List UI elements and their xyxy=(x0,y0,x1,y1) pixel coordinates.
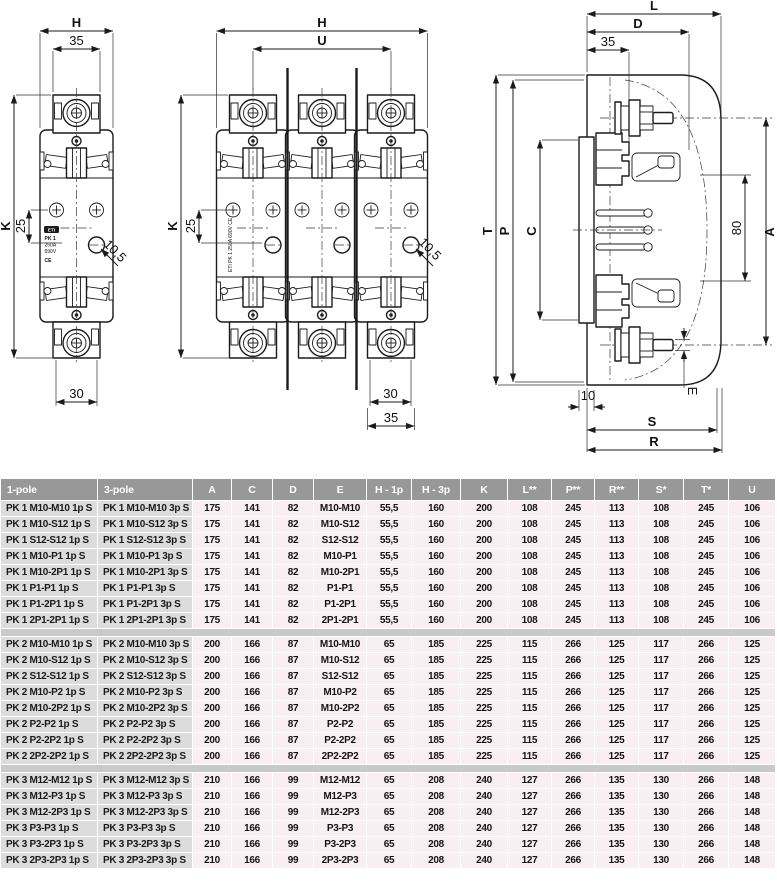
dimension-value: P2-P2 xyxy=(314,717,366,732)
dimension-value: 106 xyxy=(729,613,775,628)
dimension-value: 125 xyxy=(595,653,638,668)
dim-label-d: D xyxy=(633,16,642,31)
svg-text:CE: CE xyxy=(45,258,53,264)
dimension-value: 82 xyxy=(273,565,313,580)
dimension-value: 141 xyxy=(232,565,272,580)
dimension-value: 65 xyxy=(367,821,411,836)
dimensions-table: 1-pole 3-pole A C D E H - 1p H - 3p K L*… xyxy=(0,478,776,869)
dimension-value: 108 xyxy=(639,533,683,548)
table-row: PK 1 M10-2P1 1p SPK 1 M10-2P1 3p S175141… xyxy=(1,565,775,580)
dimension-value: 65 xyxy=(367,805,411,820)
dim-label-35-3p: 35 xyxy=(384,410,398,425)
dimension-value: 225 xyxy=(461,733,507,748)
dimension-value: 82 xyxy=(273,597,313,612)
dimension-value: 245 xyxy=(552,581,594,596)
dimension-value: 225 xyxy=(461,685,507,700)
dimension-value: M10-M10 xyxy=(314,637,366,652)
dimension-value: 245 xyxy=(684,501,728,516)
dimension-value: 115 xyxy=(508,717,551,732)
part-number-1pole: PK 2 M10-P2 1p S xyxy=(1,685,97,700)
dimension-value: 135 xyxy=(595,789,638,804)
table-row: PK 1 M10-S12 1p SPK 1 M10-S12 3p S175141… xyxy=(1,517,775,532)
dimension-value: 175 xyxy=(193,549,231,564)
dimension-value: 125 xyxy=(729,701,775,716)
dimension-value: 266 xyxy=(684,789,728,804)
dim-label-10: 10 xyxy=(581,388,595,403)
dimension-value: 117 xyxy=(639,701,683,716)
dimension-value: 108 xyxy=(639,581,683,596)
dimension-value: 82 xyxy=(273,501,313,516)
dimension-value: S12-S12 xyxy=(314,669,366,684)
dimension-value: 113 xyxy=(595,533,638,548)
dimension-value: 55,5 xyxy=(367,501,411,516)
table-row: PK 1 M10-P1 1p SPK 1 M10-P1 3p S17514182… xyxy=(1,549,775,564)
dimension-value: 117 xyxy=(639,685,683,700)
part-number-1pole: PK 3 M12-P3 1p S xyxy=(1,789,97,804)
dimension-value: 125 xyxy=(595,669,638,684)
dimension-value: 266 xyxy=(684,685,728,700)
part-number-1pole: PK 2 2P2-2P2 1p S xyxy=(1,749,97,764)
dimension-value: 208 xyxy=(412,821,460,836)
dimension-value: 225 xyxy=(461,637,507,652)
dimension-value: 115 xyxy=(508,733,551,748)
part-number-1pole: PK 2 M10-S12 1p S xyxy=(1,653,97,668)
dimension-value: 208 xyxy=(412,853,460,868)
dimension-value: 2P2-2P2 xyxy=(314,749,366,764)
dimension-value: 266 xyxy=(552,837,594,852)
dim-label-h-3p: H xyxy=(317,15,326,30)
dimension-value: 2P3-2P3 xyxy=(314,853,366,868)
dimension-value: 141 xyxy=(232,597,272,612)
product-marking-3p: ETI PK 1 250A 690V CE xyxy=(228,217,234,272)
dimension-value: 148 xyxy=(729,853,775,868)
table-header-row: 1-pole 3-pole A C D E H - 1p H - 3p K L*… xyxy=(1,479,775,500)
dimension-value: 65 xyxy=(367,701,411,716)
dimension-value: 266 xyxy=(552,637,594,652)
dimension-value: 200 xyxy=(193,701,231,716)
dimension-value: 87 xyxy=(273,653,313,668)
svg-text:PK 1: PK 1 xyxy=(45,236,56,242)
column-header-h3p: H - 3p xyxy=(412,479,460,500)
dim-label-35-1p: 35 xyxy=(69,33,83,48)
dimension-value: 266 xyxy=(684,837,728,852)
dimension-value: 160 xyxy=(412,517,460,532)
dimension-value: S12-S12 xyxy=(314,533,366,548)
dimension-value: 125 xyxy=(729,749,775,764)
dimension-value: 82 xyxy=(273,549,313,564)
dimension-value: 175 xyxy=(193,613,231,628)
dimension-value: 225 xyxy=(461,669,507,684)
dimension-value: 200 xyxy=(193,717,231,732)
dimension-value: P2-2P2 xyxy=(314,733,366,748)
dim-label-a: A xyxy=(762,227,777,237)
table-row: PK 1 S12-S12 1p SPK 1 S12-S12 3p S175141… xyxy=(1,533,775,548)
dimension-value: 141 xyxy=(232,533,272,548)
dimension-value: M10-2P2 xyxy=(314,701,366,716)
dimension-value: 266 xyxy=(552,853,594,868)
dimension-value: 65 xyxy=(367,669,411,684)
dimension-value: 166 xyxy=(232,701,272,716)
part-number-1pole: PK 2 M10-M10 1p S xyxy=(1,637,97,652)
part-number-3pole: PK 2 2P2-2P2 3p S xyxy=(98,749,192,764)
dimension-value: 200 xyxy=(461,565,507,580)
part-number-3pole: PK 3 M12-M12 3p S xyxy=(98,773,192,788)
dimension-value: 266 xyxy=(552,653,594,668)
part-number-1pole: PK 3 P3-2P3 1p S xyxy=(1,837,97,852)
dimension-value: 166 xyxy=(232,653,272,668)
dimension-value: 130 xyxy=(639,805,683,820)
dimension-value: 87 xyxy=(273,733,313,748)
dimension-value: 55,5 xyxy=(367,533,411,548)
dimension-value: 166 xyxy=(232,733,272,748)
dimension-value: 106 xyxy=(729,549,775,564)
part-number-1pole: PK 3 P3-P3 1p S xyxy=(1,821,97,836)
dimension-value: 266 xyxy=(684,717,728,732)
dimension-value: 245 xyxy=(552,517,594,532)
dimension-value: 166 xyxy=(232,837,272,852)
dimension-value: 115 xyxy=(508,669,551,684)
svg-text:690V: 690V xyxy=(45,249,57,255)
dimension-value: 245 xyxy=(552,549,594,564)
table-row: PK 2 M10-P2 1p SPK 2 M10-P2 3p S20016687… xyxy=(1,685,775,700)
dimension-value: M10-S12 xyxy=(314,517,366,532)
column-header-l: L** xyxy=(508,479,551,500)
dimension-value: 245 xyxy=(684,549,728,564)
part-number-1pole: PK 1 M10-S12 1p S xyxy=(1,517,97,532)
dimension-value: 115 xyxy=(508,701,551,716)
dimension-value: 208 xyxy=(412,773,460,788)
dimension-value: 266 xyxy=(552,717,594,732)
dimension-value: 185 xyxy=(412,733,460,748)
dimension-value: 200 xyxy=(461,613,507,628)
dimension-value: 127 xyxy=(508,853,551,868)
dimension-value: 245 xyxy=(684,533,728,548)
dimension-value: 113 xyxy=(595,549,638,564)
dimension-value: M10-2P1 xyxy=(314,565,366,580)
dimension-value: 125 xyxy=(729,733,775,748)
dimension-value: 108 xyxy=(508,581,551,596)
table-row: PK 1 M10-M10 1p SPK 1 M10-M10 3p S175141… xyxy=(1,501,775,516)
dim-label-p: P xyxy=(497,226,512,235)
dimension-value: 108 xyxy=(639,501,683,516)
dimension-value: 130 xyxy=(639,853,683,868)
dimension-value: 113 xyxy=(595,517,638,532)
dimension-value: 245 xyxy=(684,613,728,628)
dimension-value: 65 xyxy=(367,733,411,748)
dimension-value: 166 xyxy=(232,789,272,804)
dimension-value: 185 xyxy=(412,653,460,668)
table-row: PK 2 M10-2P2 1p SPK 2 M10-2P2 3p S200166… xyxy=(1,701,775,716)
dimension-value: 200 xyxy=(461,517,507,532)
dimension-value: 125 xyxy=(595,637,638,652)
dimension-value: 166 xyxy=(232,821,272,836)
dimension-value: 200 xyxy=(193,749,231,764)
dimension-value: 99 xyxy=(273,773,313,788)
dimension-value: 117 xyxy=(639,653,683,668)
dimension-value: 266 xyxy=(684,773,728,788)
column-header-r: R** xyxy=(595,479,638,500)
dimension-value: 65 xyxy=(367,773,411,788)
dimension-value: 127 xyxy=(508,789,551,804)
dimension-value: 245 xyxy=(684,581,728,596)
dimension-value: 200 xyxy=(193,653,231,668)
dimension-value: M10-M10 xyxy=(314,501,366,516)
dimension-value: 82 xyxy=(273,533,313,548)
dimension-value: 175 xyxy=(193,517,231,532)
drawing-side-view: L D 35 T P C A 80 E xyxy=(480,0,777,453)
part-number-1pole: PK 1 M10-2P1 1p S xyxy=(1,565,97,580)
dimension-value: 87 xyxy=(273,637,313,652)
dimension-value: 108 xyxy=(639,613,683,628)
dimension-value: 106 xyxy=(729,565,775,580)
part-number-1pole: PK 1 S12-S12 1p S xyxy=(1,533,97,548)
dim-label-e: E xyxy=(685,387,700,396)
part-number-3pole: PK 2 M10-2P2 3p S xyxy=(98,701,192,716)
dimension-value: 160 xyxy=(412,549,460,564)
dim-label-30-3p: 30 xyxy=(383,386,397,401)
dimension-value: 113 xyxy=(595,565,638,580)
dimension-value: 127 xyxy=(508,773,551,788)
dimension-value: 266 xyxy=(552,805,594,820)
table-row: PK 2 M10-M10 1p SPK 2 M10-M10 3p S200166… xyxy=(1,637,775,652)
dimension-value: 106 xyxy=(729,533,775,548)
dim-label-s: S xyxy=(648,414,657,429)
dimension-value: 106 xyxy=(729,597,775,612)
dimension-value: 200 xyxy=(193,733,231,748)
column-header-h1p: H - 1p xyxy=(367,479,411,500)
dimension-value: 55,5 xyxy=(367,581,411,596)
dim-label-k-3p: K xyxy=(165,221,180,231)
table-row: PK 3 P3-P3 1p SPK 3 P3-P3 3p S21016699P3… xyxy=(1,821,775,836)
dimension-value: 108 xyxy=(508,597,551,612)
part-number-3pole: PK 1 M10-M10 3p S xyxy=(98,501,192,516)
dimension-value: P1-2P1 xyxy=(314,597,366,612)
dimension-value: 113 xyxy=(595,501,638,516)
column-header-s: S* xyxy=(639,479,683,500)
part-number-3pole: PK 1 M10-P1 3p S xyxy=(98,549,192,564)
dimension-value: 185 xyxy=(412,669,460,684)
dimension-value: 117 xyxy=(639,717,683,732)
dimension-value: 185 xyxy=(412,717,460,732)
group-separator xyxy=(1,629,775,636)
table-body: PK 1 M10-M10 1p SPK 1 M10-M10 3p S175141… xyxy=(1,501,775,868)
dimension-value: 200 xyxy=(193,637,231,652)
column-header-k: K xyxy=(461,479,507,500)
dimension-value: 175 xyxy=(193,581,231,596)
dimension-value: 160 xyxy=(412,565,460,580)
part-number-3pole: PK 2 P2-P2 3p S xyxy=(98,717,192,732)
part-number-3pole: PK 3 M12-P3 3p S xyxy=(98,789,192,804)
dimension-value: 2P1-2P1 xyxy=(314,613,366,628)
dimension-value: 106 xyxy=(729,517,775,532)
dimension-value: 99 xyxy=(273,821,313,836)
table-row: PK 3 P3-2P3 1p SPK 3 P3-2P3 3p S21016699… xyxy=(1,837,775,852)
dim-label-u-3p: U xyxy=(317,33,326,48)
dimension-value: 130 xyxy=(639,789,683,804)
part-number-3pole: PK 2 M10-S12 3p S xyxy=(98,653,192,668)
dimension-value: M10-P1 xyxy=(314,549,366,564)
marking-logo-text: ETI xyxy=(48,228,55,233)
part-number-1pole: PK 1 P1-P1 1p S xyxy=(1,581,97,596)
dimension-value: 160 xyxy=(412,613,460,628)
column-header-1pole: 1-pole xyxy=(1,479,97,500)
part-number-1pole: PK 1 M10-P1 1p S xyxy=(1,549,97,564)
dimension-value: 266 xyxy=(684,805,728,820)
dimension-value: 135 xyxy=(595,773,638,788)
table-row: PK 2 P2-P2 1p SPK 2 P2-P2 3p S20016687P2… xyxy=(1,717,775,732)
dimension-value: 266 xyxy=(552,773,594,788)
dimension-value: 245 xyxy=(552,501,594,516)
dimension-value: 185 xyxy=(412,701,460,716)
dim-label-t: T xyxy=(480,227,495,235)
dimension-value: 141 xyxy=(232,613,272,628)
dimension-value: 166 xyxy=(232,773,272,788)
dimension-value: M12-P3 xyxy=(314,789,366,804)
dimension-value: 125 xyxy=(729,669,775,684)
dimension-value: 200 xyxy=(461,581,507,596)
dimension-value: 108 xyxy=(639,517,683,532)
dimension-value: 266 xyxy=(684,637,728,652)
dimension-value: 210 xyxy=(193,821,231,836)
dimension-value: 65 xyxy=(367,789,411,804)
dimension-value: 166 xyxy=(232,717,272,732)
dimension-value: 148 xyxy=(729,773,775,788)
dimension-value: 245 xyxy=(552,533,594,548)
dimension-value: 82 xyxy=(273,613,313,628)
part-number-3pole: PK 3 2P3-2P3 3p S xyxy=(98,853,192,868)
dimension-value: 208 xyxy=(412,805,460,820)
dimension-value: 266 xyxy=(684,853,728,868)
dimension-value: 130 xyxy=(639,837,683,852)
dimension-value: 175 xyxy=(193,533,231,548)
dimension-value: 141 xyxy=(232,581,272,596)
column-header-c: C xyxy=(232,479,272,500)
dimension-value: 240 xyxy=(461,773,507,788)
part-number-1pole: PK 1 P1-2P1 1p S xyxy=(1,597,97,612)
dimension-value: 135 xyxy=(595,853,638,868)
dimension-value: 266 xyxy=(552,821,594,836)
part-number-3pole: PK 2 M10-M10 3p S xyxy=(98,637,192,652)
dimension-value: 225 xyxy=(461,717,507,732)
dimension-value: 210 xyxy=(193,837,231,852)
dimension-value: 245 xyxy=(684,565,728,580)
dimension-value: 200 xyxy=(461,501,507,516)
drawing-1pole-front: ETI PK 1 250A 690V CE H 35 K 25 30 10,5 xyxy=(0,15,129,406)
dimension-value: 200 xyxy=(193,685,231,700)
part-number-3pole: PK 2 P2-2P2 3p S xyxy=(98,733,192,748)
dimension-value: 130 xyxy=(639,821,683,836)
dimension-value: 125 xyxy=(729,653,775,668)
dimension-value: 266 xyxy=(684,749,728,764)
dimension-value: 127 xyxy=(508,821,551,836)
dimension-value: 108 xyxy=(639,549,683,564)
table-row: PK 1 2P1-2P1 1p SPK 1 2P1-2P1 3p S175141… xyxy=(1,613,775,628)
part-number-3pole: PK 1 S12-S12 3p S xyxy=(98,533,192,548)
dimension-value: 65 xyxy=(367,749,411,764)
dimension-value: 200 xyxy=(461,597,507,612)
dimension-table-section: 1-pole 3-pole A C D E H - 1p H - 3p K L*… xyxy=(0,478,777,869)
dimension-value: 148 xyxy=(729,789,775,804)
dimension-value: 99 xyxy=(273,805,313,820)
dimension-value: 115 xyxy=(508,637,551,652)
dimension-value: 240 xyxy=(461,837,507,852)
dimension-value: 55,5 xyxy=(367,613,411,628)
part-number-3pole: PK 2 M10-P2 3p S xyxy=(98,685,192,700)
dimension-value: 125 xyxy=(729,685,775,700)
dimension-value: 117 xyxy=(639,669,683,684)
dimension-value: 200 xyxy=(193,669,231,684)
dim-label-30-1p: 30 xyxy=(69,386,83,401)
dimension-value: 160 xyxy=(412,501,460,516)
dimension-value: 65 xyxy=(367,837,411,852)
table-row: PK 1 P1-P1 1p SPK 1 P1-P1 3p S17514182P1… xyxy=(1,581,775,596)
dimension-value: 225 xyxy=(461,653,507,668)
part-number-1pole: PK 2 M10-2P2 1p S xyxy=(1,701,97,716)
dimension-value: 87 xyxy=(273,685,313,700)
part-number-3pole: PK 1 M10-S12 3p S xyxy=(98,517,192,532)
dimension-value: 99 xyxy=(273,789,313,804)
dimension-value: 266 xyxy=(684,733,728,748)
group-separator-cell xyxy=(1,765,775,772)
dimension-value: 208 xyxy=(412,837,460,852)
dimension-value: 106 xyxy=(729,581,775,596)
dimension-value: 266 xyxy=(684,821,728,836)
dimension-value: 175 xyxy=(193,565,231,580)
part-number-1pole: PK 1 M10-M10 1p S xyxy=(1,501,97,516)
dimension-value: 141 xyxy=(232,549,272,564)
part-number-3pole: PK 3 P3-2P3 3p S xyxy=(98,837,192,852)
dimension-value: 266 xyxy=(552,733,594,748)
dimension-value: 115 xyxy=(508,749,551,764)
dimension-value: 141 xyxy=(232,517,272,532)
dim-label-80: 80 xyxy=(729,221,744,235)
dim-label-25-3p: 25 xyxy=(183,219,198,233)
group-separator xyxy=(1,765,775,772)
dimension-value: 65 xyxy=(367,685,411,700)
part-number-3pole: PK 1 M10-2P1 3p S xyxy=(98,565,192,580)
dimension-value: 125 xyxy=(729,717,775,732)
dim-label-k-1p: K xyxy=(0,221,13,231)
part-number-1pole: PK 1 2P1-2P1 1p S xyxy=(1,613,97,628)
dimension-value: 99 xyxy=(273,837,313,852)
dimension-value: 65 xyxy=(367,853,411,868)
dimension-value: 55,5 xyxy=(367,549,411,564)
dimension-value: 130 xyxy=(639,773,683,788)
dimension-value: 266 xyxy=(684,653,728,668)
drawing-3pole-front: ETI PK 1 250A 690V CE H U K 25 10,5 30 3… xyxy=(165,15,444,430)
dimension-value: 117 xyxy=(639,749,683,764)
table-row: PK 3 M12-M12 1p SPK 3 M12-M12 3p S210166… xyxy=(1,773,775,788)
dimension-value: 108 xyxy=(639,565,683,580)
dimension-value: 108 xyxy=(508,501,551,516)
part-number-3pole: PK 1 P1-2P1 3p S xyxy=(98,597,192,612)
dimension-value: 266 xyxy=(552,685,594,700)
part-number-1pole: PK 2 P2-2P2 1p S xyxy=(1,733,97,748)
dim-label-35-side: 35 xyxy=(601,34,615,49)
table-row: PK 2 2P2-2P2 1p SPK 2 2P2-2P2 3p S200166… xyxy=(1,749,775,764)
part-number-1pole: PK 2 P2-P2 1p S xyxy=(1,717,97,732)
dimension-value: P3-2P3 xyxy=(314,837,366,852)
dimension-value: 240 xyxy=(461,805,507,820)
part-number-1pole: PK 3 M12-2P3 1p S xyxy=(1,805,97,820)
drawings-svg: ETI PK 1 250A 690V CE H 35 K 25 30 10,5 xyxy=(0,0,777,478)
group-separator-cell xyxy=(1,629,775,636)
dimension-value: 160 xyxy=(412,597,460,612)
dimension-value: 127 xyxy=(508,805,551,820)
dimension-value: 65 xyxy=(367,637,411,652)
dimension-value: 210 xyxy=(193,789,231,804)
part-number-3pole: PK 2 S12-S12 3p S xyxy=(98,669,192,684)
